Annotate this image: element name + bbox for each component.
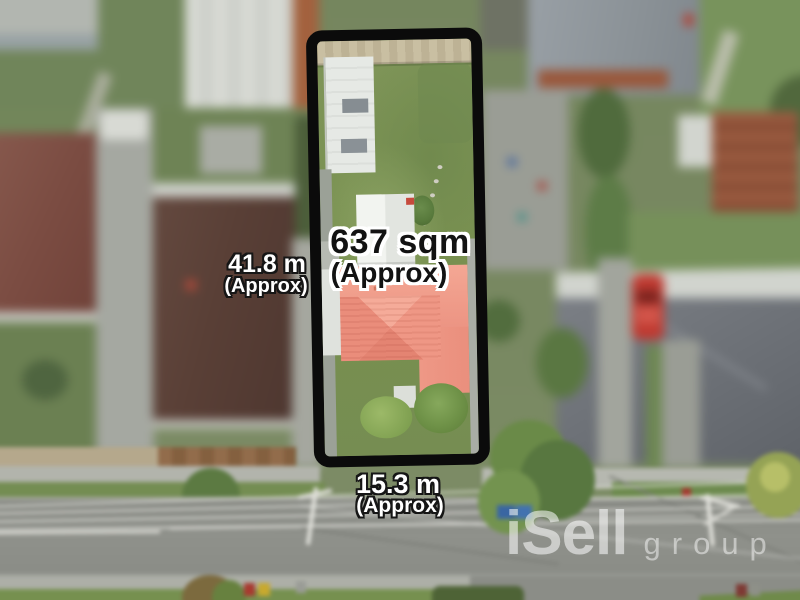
- depth-dimension-label: 41.8 m: [157, 251, 377, 277]
- bin-grey: [296, 581, 306, 593]
- subject-shed-roof: [323, 56, 375, 173]
- bin-yellow: [258, 583, 270, 596]
- shed-skylight: [341, 139, 367, 153]
- agency-watermark: iSell group: [505, 498, 778, 569]
- shed-skylight: [342, 99, 368, 113]
- roof-vent: [406, 198, 414, 205]
- tree-highlight: [760, 462, 790, 492]
- frontage-approx-label: (Approx): [290, 495, 510, 517]
- hedge: [432, 586, 524, 600]
- stepping-stone: [434, 179, 439, 183]
- bin-red: [244, 583, 255, 596]
- lawn-patch: [417, 63, 473, 144]
- depth-approx-label: (Approx): [156, 276, 376, 297]
- subject-house-roof-hip: [340, 295, 441, 361]
- bin-grey: [750, 584, 760, 596]
- watermark-brand: iSell: [505, 498, 628, 569]
- front-hedge: [158, 447, 296, 467]
- aerial-photo: iSell group 637 sqm (Approx) 41.8 m (App…: [0, 0, 800, 600]
- watermark-suffix: group: [644, 526, 778, 562]
- bin-red: [736, 584, 747, 597]
